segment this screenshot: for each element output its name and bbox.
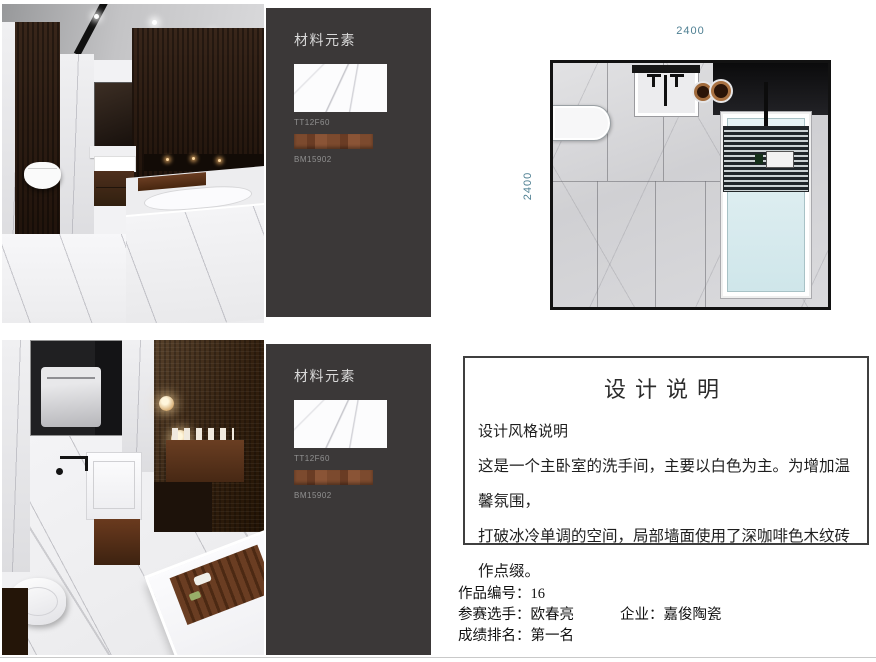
- tile-line: [553, 181, 720, 182]
- marble-wall-edge: [2, 22, 15, 240]
- work-no-label: 作品编号：: [458, 586, 531, 602]
- wall-hung-toilet: [24, 162, 61, 189]
- wood-shelf: [166, 440, 244, 482]
- faucet-handle: [56, 468, 63, 475]
- reflected-bed: [41, 367, 101, 427]
- bathroom-render-top: [2, 4, 264, 323]
- wood-swatch: [294, 134, 373, 149]
- plan-bathtub-dish: [766, 151, 794, 168]
- candle-flame: [166, 158, 169, 161]
- entry-work-no: 作品编号：16: [458, 584, 722, 605]
- marble-column: [60, 54, 94, 240]
- company-value: 嘉俊陶瓷: [664, 607, 722, 623]
- bathroom-render-bottom: [2, 340, 264, 655]
- ceiling-spotlight: [152, 20, 157, 25]
- design-description: 这是一个主卧室的洗手间，主要以白色为主。为增加温馨氛围， 打破冰冷单调的空间，局…: [465, 449, 867, 589]
- contestant-label: 参赛选手：: [458, 607, 531, 623]
- plan-dimension-width: 2400: [550, 25, 831, 37]
- material-panel-bottom: 材料元素 TT12F60 BM15902: [266, 344, 431, 655]
- tile-line: [705, 181, 706, 307]
- white-sink: [86, 452, 142, 520]
- vanity-mirror: [94, 82, 134, 148]
- globe-pendant-light: [159, 396, 174, 411]
- plan-bathtub-faucet-stem: [764, 82, 768, 128]
- ceiling-spotlight: [94, 14, 99, 19]
- marble-swatch: [294, 400, 387, 448]
- rank-label: 成绩排名：: [458, 628, 531, 644]
- marble-swatch-code: TT12F60: [294, 454, 330, 463]
- marble-swatch-code: TT12F60: [294, 118, 330, 127]
- floor-plan: [550, 60, 831, 310]
- wall-faucet-spout: [85, 456, 88, 471]
- wood-sink-base: [94, 519, 140, 565]
- material-panel-title: 材料元素: [294, 366, 356, 386]
- design-description-line: 打破冰冷单调的空间，局部墙面使用了深咖啡色木纹砖作点缀。: [478, 519, 854, 589]
- rank-value: 第一名: [531, 628, 575, 644]
- wood-swatch-code: BM15902: [294, 155, 332, 164]
- candle-flame: [192, 157, 195, 160]
- plan-vessel-sink-2: [711, 81, 731, 101]
- company-label: 企业：: [620, 607, 664, 623]
- vanity-basin: [94, 156, 136, 172]
- tile-line: [597, 181, 598, 307]
- tile-line: [655, 181, 656, 307]
- plan-sink-ledge: [632, 65, 700, 73]
- design-description-line: 这是一个主卧室的洗手间，主要以白色为主。为增加温馨氛围，: [478, 449, 854, 519]
- wall-faucet: [60, 456, 88, 459]
- marble-swatch: [294, 64, 387, 112]
- plan-bathtub: [720, 111, 812, 299]
- plan-bathtub-slatted-tray: [723, 126, 809, 192]
- mirror-bedroom-reflection: [30, 340, 124, 436]
- bathtub-marble-front: [126, 203, 264, 323]
- plan-vessel-sink-1: [694, 83, 712, 101]
- plan-sink: [635, 66, 698, 116]
- work-no-value: 16: [531, 586, 546, 602]
- wood-swatch-code: BM15902: [294, 491, 332, 500]
- entry-info: 作品编号：16 参赛选手：欧春亮企业：嘉俊陶瓷 成绩排名：第一名: [458, 584, 722, 647]
- design-note-box: 设计说明 设计风格说明 这是一个主卧室的洗手间，主要以白色为主。为增加温馨氛围，…: [463, 356, 869, 545]
- marble-wall-left: [2, 340, 30, 572]
- contestant-value: 欧春亮: [531, 607, 575, 623]
- entry-rank: 成绩排名：第一名: [458, 626, 722, 647]
- plan-toilet: [552, 105, 611, 141]
- material-panel-title: 材料元素: [294, 30, 356, 50]
- entry-contestant: 参赛选手：欧春亮企业：嘉俊陶瓷: [458, 605, 722, 626]
- dark-vanity-niche: [154, 482, 212, 532]
- bottom-divider: [0, 657, 876, 658]
- candle-flame: [218, 159, 221, 162]
- design-note-title: 设计说明: [465, 372, 867, 404]
- plan-faucet-spout: [664, 75, 667, 106]
- design-style-subtitle: 设计风格说明: [478, 420, 867, 441]
- plan-faucet: [670, 74, 684, 77]
- plan-dimension-height: 2400: [522, 172, 534, 200]
- material-panel-top: 材料元素 TT12F60 BM15902: [266, 8, 431, 317]
- wood-swatch: [294, 470, 373, 485]
- dark-cabinet: [2, 588, 28, 655]
- plan-faucet: [647, 74, 661, 77]
